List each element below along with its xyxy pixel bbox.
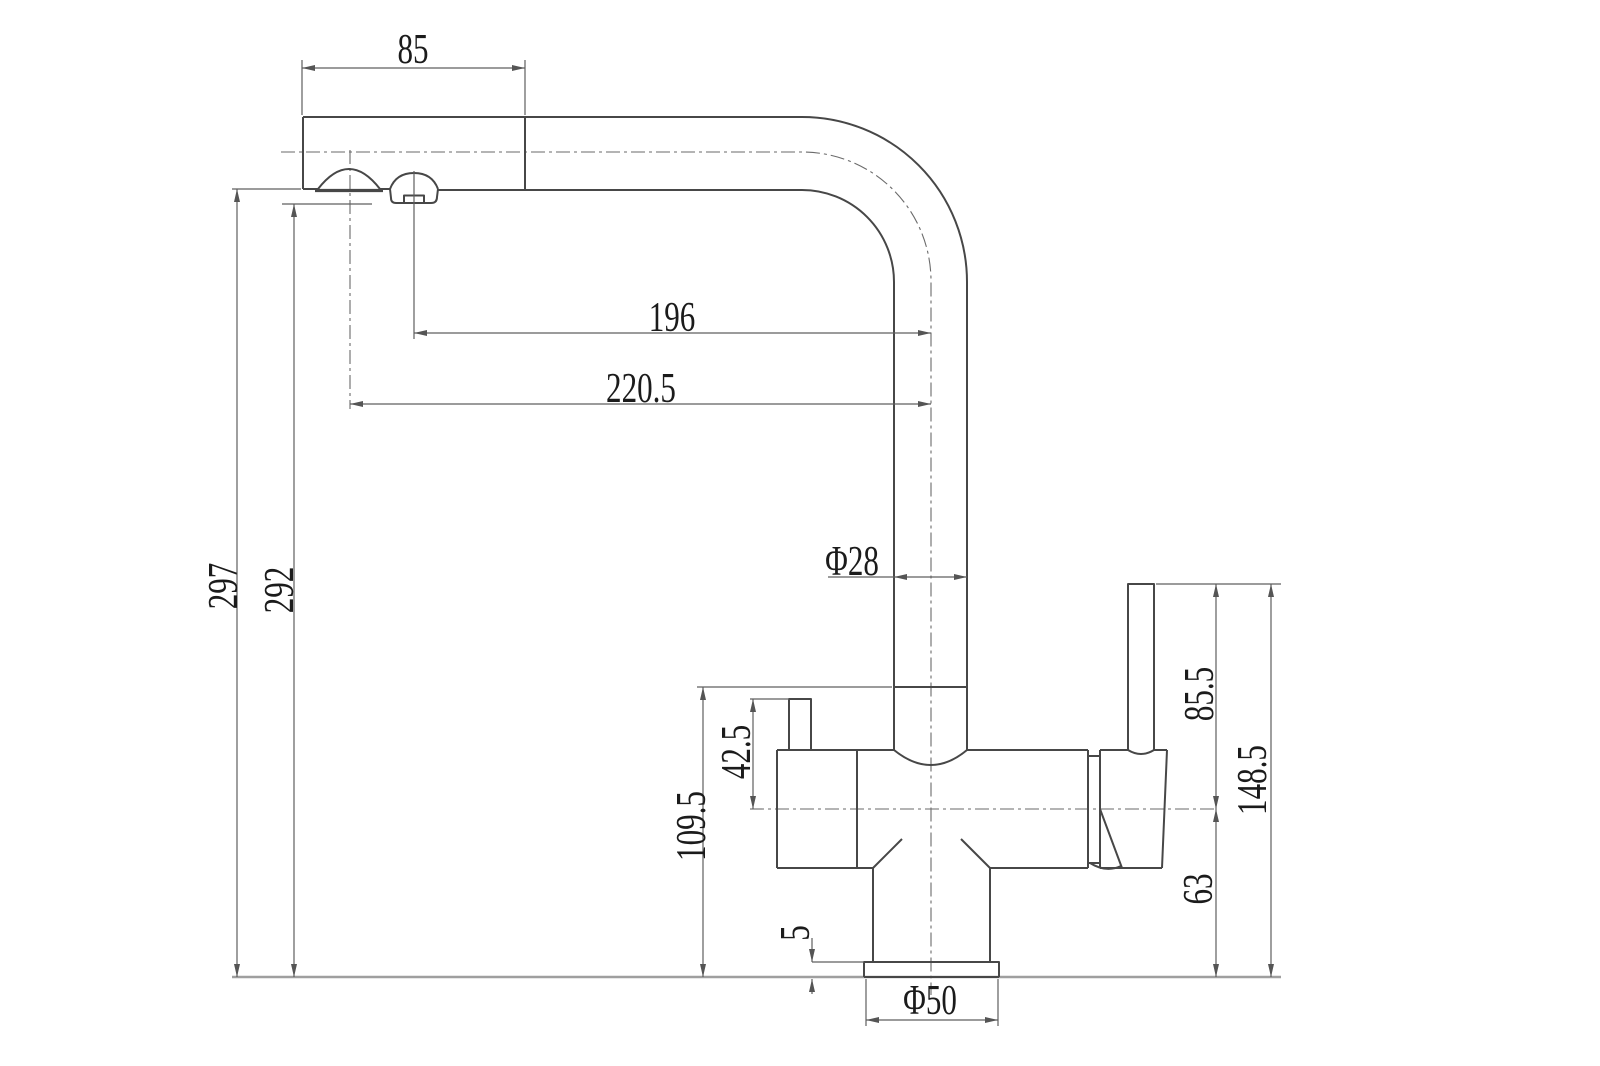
dim-label-109-5: 109.5 <box>668 791 715 861</box>
dim-label-63: 63 <box>1175 873 1222 904</box>
dim-label-297: 297 <box>200 563 247 610</box>
technical-drawing-canvas: 85 196 220.5 Φ28 Φ50 297 292 42.5 109.5 … <box>0 0 1600 1066</box>
aerator-dome-1 <box>318 169 380 189</box>
dim-label-42-5: 42.5 <box>713 725 760 779</box>
spout-inner-profile <box>438 190 894 750</box>
dim-label-85: 85 <box>397 26 428 73</box>
lever-base-fillet <box>1128 750 1154 754</box>
dim-label-5: 5 <box>772 925 819 941</box>
dim-label-220-5: 220.5 <box>606 365 676 412</box>
dimension-labels: 85 196 220.5 Φ28 Φ50 297 292 42.5 109.5 … <box>200 26 1276 1024</box>
diverter-knob <box>789 699 811 750</box>
handle-pivot-lines <box>1090 809 1122 869</box>
dim-label-85-5: 85.5 <box>1176 667 1223 721</box>
faucet-outline <box>303 117 1167 977</box>
dim-label-292: 292 <box>256 567 303 614</box>
dimension-5 <box>812 938 864 994</box>
dim-label-196: 196 <box>649 294 696 341</box>
dim-label-phi50: Φ50 <box>903 977 957 1024</box>
dim-label-phi28: Φ28 <box>825 538 879 585</box>
spout-outer-profile <box>303 117 967 750</box>
handle-lever <box>1128 584 1154 750</box>
dim-label-148-5: 148.5 <box>1229 745 1276 815</box>
faucet-dimension-drawing: 85 196 220.5 Φ28 Φ50 297 292 42.5 109.5 … <box>0 0 1600 1066</box>
